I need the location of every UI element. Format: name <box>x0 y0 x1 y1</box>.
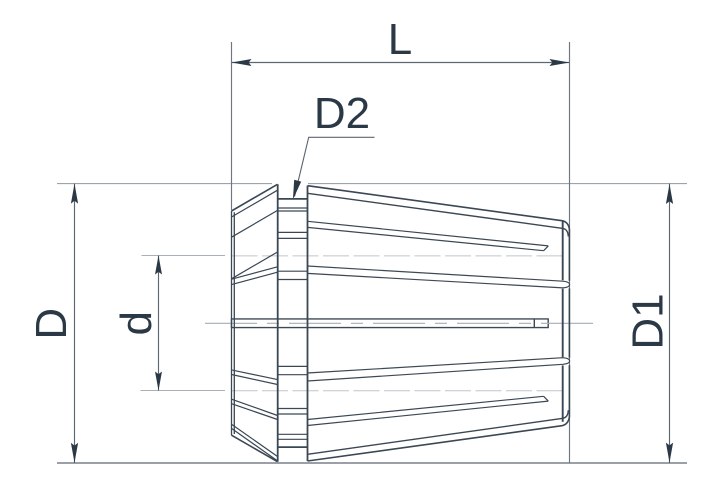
svg-text:D1: D1 <box>623 293 672 349</box>
svg-text:L: L <box>388 15 412 64</box>
svg-text:d: d <box>112 311 161 335</box>
svg-text:D2: D2 <box>314 89 370 138</box>
svg-text:D: D <box>27 308 76 340</box>
